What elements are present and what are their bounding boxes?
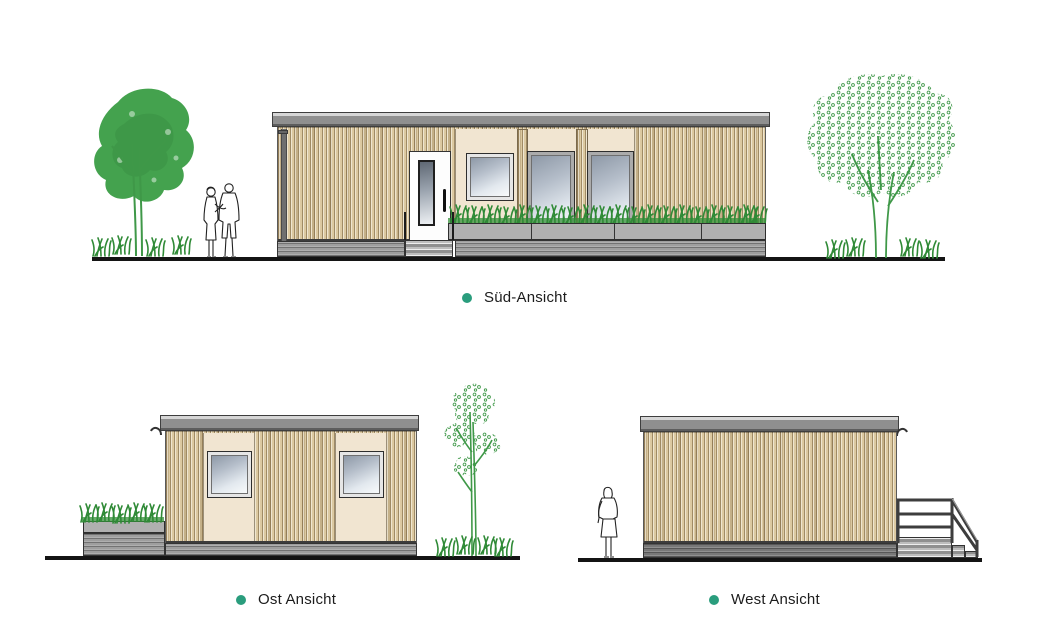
step-rail-post <box>404 212 406 240</box>
ost-caption-label: Ost Ansicht <box>258 591 336 608</box>
sued-roof <box>272 112 770 127</box>
tree-canopy <box>807 74 955 197</box>
man-head <box>225 184 233 192</box>
woman-skirt <box>601 519 617 537</box>
ost-window-1 <box>207 451 252 498</box>
west-marker-dot-icon <box>709 595 719 605</box>
sued-window-1 <box>466 153 514 201</box>
ost-caption: Ost Ansicht <box>236 591 336 608</box>
step-rail-post <box>452 212 454 240</box>
window-glass <box>343 455 380 494</box>
sued-caption-label: Süd-Ansicht <box>484 289 567 306</box>
west-deck-railing <box>894 494 986 560</box>
man-body <box>219 193 239 238</box>
sued-tree-right <box>806 70 958 260</box>
ost-roof <box>160 415 419 431</box>
west-gutter-curl <box>895 424 909 438</box>
sued-tree-left <box>84 84 198 260</box>
sued-planter-plants <box>448 201 766 225</box>
sued-planter-box <box>448 223 766 240</box>
grass-tufts <box>436 536 513 556</box>
door-handle <box>443 189 446 212</box>
elevation-sheet: Süd-Ansicht <box>0 0 1057 624</box>
sued-entry-steps <box>405 240 453 257</box>
sued-caption: Süd-Ansicht <box>462 289 567 306</box>
sued-plinth-left <box>277 241 405 257</box>
window-glass <box>470 157 510 197</box>
window-glass <box>211 455 248 494</box>
sued-entry-door <box>409 151 451 241</box>
west-person-figure <box>594 485 624 560</box>
tree-canopy <box>444 384 500 476</box>
door-glass <box>418 160 435 226</box>
sued-terrace-base <box>455 240 766 257</box>
west-plinth <box>643 543 897 558</box>
west-roof <box>640 416 899 432</box>
downpipe-bracket <box>278 130 288 134</box>
ost-marker-dot-icon <box>236 595 246 605</box>
west-caption-label: West Ansicht <box>731 591 820 608</box>
woman-body <box>204 197 218 240</box>
ost-window-2 <box>339 451 384 498</box>
sued-downpipe <box>281 129 287 251</box>
sued-couple-figures <box>199 182 243 260</box>
ost-plinth <box>165 543 417 556</box>
west-caption: West Ansicht <box>709 591 820 608</box>
west-wall-siding <box>643 432 897 543</box>
ost-tree <box>432 382 514 558</box>
ost-planter-base <box>83 533 165 556</box>
grass-tufts <box>826 238 939 258</box>
ost-gutter-curl <box>149 423 163 437</box>
sued-marker-dot-icon <box>462 293 472 303</box>
ost-planter-plants <box>76 498 168 524</box>
